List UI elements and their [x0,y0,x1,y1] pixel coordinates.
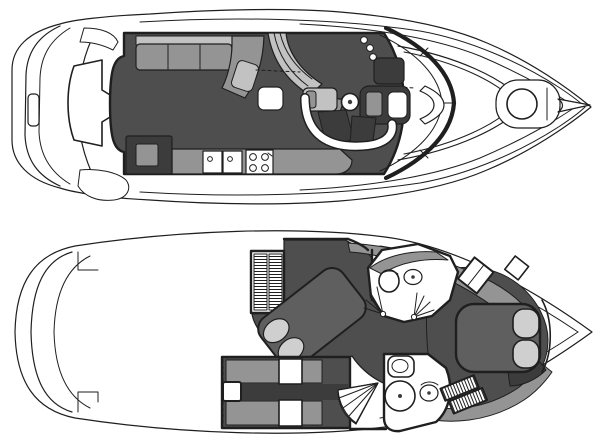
burner [250,154,257,161]
mid-cabin-lounge [222,357,350,428]
floorplan-canvas [0,0,600,446]
faucet-dot [208,157,213,162]
lounge-walkway [224,384,348,400]
burner [262,154,269,161]
stanchion-dot [361,37,368,44]
lounge-cabinet [279,359,302,384]
deck-inset [505,256,529,280]
wheel-hub [348,100,352,104]
burner [250,165,257,172]
bow-hatch [507,89,537,119]
forward-stateroom [456,300,550,372]
burner [262,165,269,172]
berth-pillow [513,309,539,338]
yacht-deck-plans [0,0,600,446]
upper-deck-plan [12,10,591,204]
lounge-settee [226,401,322,425]
cabinet-top [258,87,283,110]
toilet-dot [427,391,431,395]
berth-pillow [513,340,539,368]
ladder-hatch [254,254,267,310]
stanchion-dot [367,45,374,52]
lounge-settee [226,360,322,383]
lower-deck-plan [15,231,592,433]
lounge-cabinet [279,400,302,426]
door-pivot [411,314,416,319]
ladder-hatch [269,254,282,310]
refrigerator-door [136,144,158,166]
console-panel [366,92,382,116]
shower-drain [398,394,402,398]
platform-latch [28,94,39,126]
galley-sink [203,151,222,173]
aft-head [384,354,450,431]
faucet-dot [228,157,233,162]
console-inset [388,92,407,118]
companionway-ladder [251,251,284,313]
lounge-table [223,382,241,401]
helm-module [374,58,404,84]
galley-sink [223,151,242,173]
counter-basin [392,360,408,373]
door-pivot [380,311,385,316]
basin-dot [411,275,415,279]
settee-seat [136,44,232,70]
